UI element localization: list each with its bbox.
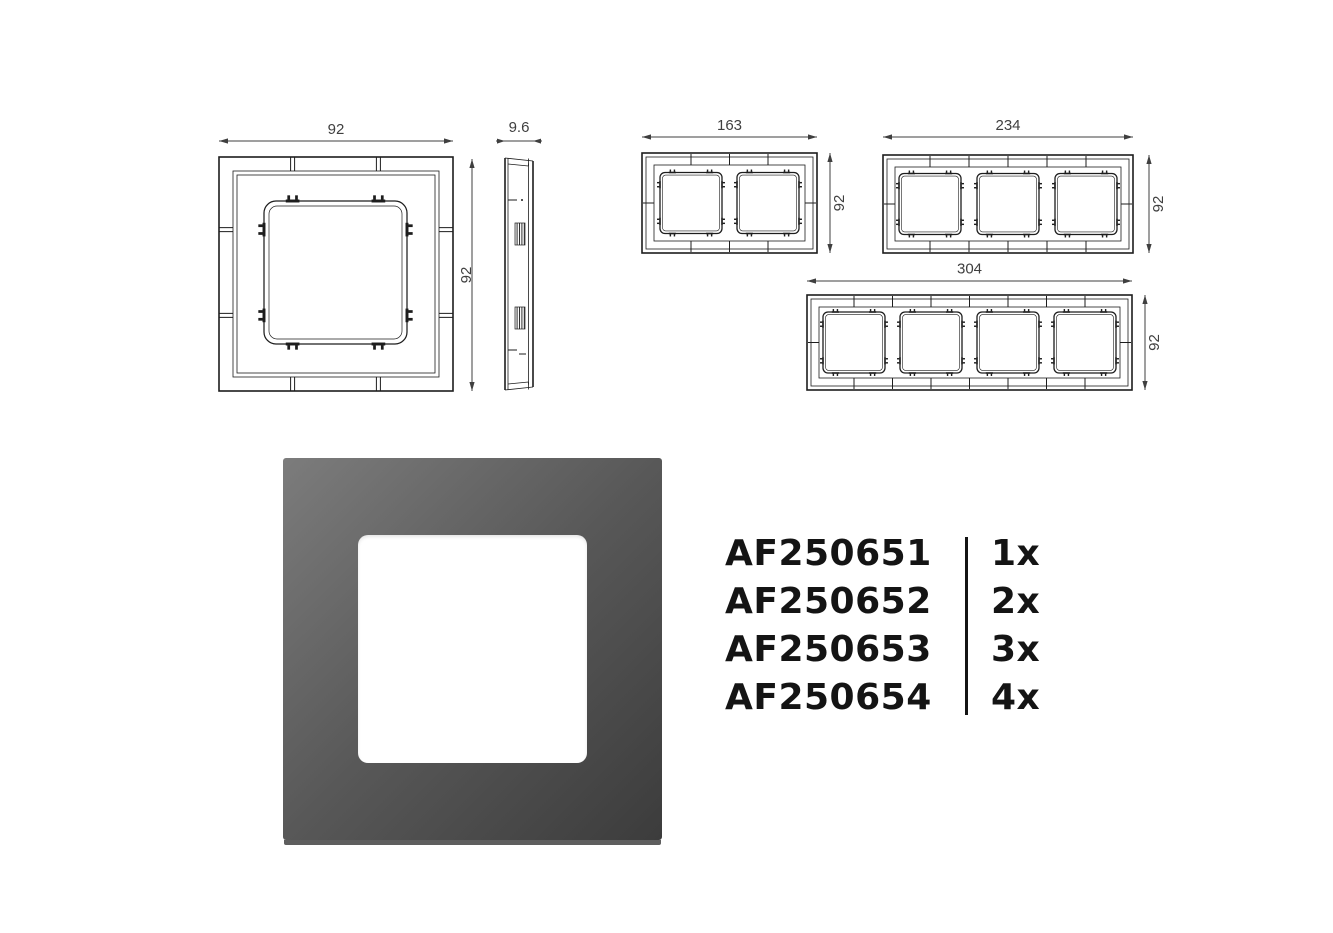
product-code: AF250651 bbox=[725, 533, 965, 574]
frame-photo-bottom-edge bbox=[284, 840, 661, 845]
datasheet-canvas: 92 92 9.6 bbox=[0, 0, 1333, 933]
side-profile-clips bbox=[508, 199, 526, 354]
gang4-height-dimension: 92 bbox=[1142, 295, 1163, 390]
dimension-label: 163 bbox=[717, 117, 742, 134]
gang3-height-dimension: 92 bbox=[1146, 155, 1167, 253]
frame-photo-opening bbox=[358, 535, 587, 763]
drawing-side-profile: 9.6 bbox=[495, 110, 555, 410]
product-row: AF250654 4x bbox=[725, 673, 1065, 721]
gang2-height-dimension: 92 bbox=[827, 153, 848, 253]
single-frame-opening bbox=[258, 195, 412, 349]
dimension-label: 9.6 bbox=[509, 119, 530, 136]
single-frame-outline bbox=[219, 157, 453, 391]
frame-photo bbox=[283, 458, 662, 840]
single-height-dimension: 92 bbox=[458, 159, 475, 391]
gang3-width-dimension: 234 bbox=[883, 117, 1133, 140]
product-quantity: 4x bbox=[965, 677, 1040, 718]
gang2-width-dimension: 163 bbox=[642, 117, 817, 140]
gang4-width-dimension: 304 bbox=[807, 261, 1132, 284]
product-code: AF250652 bbox=[725, 581, 965, 622]
single-frame-notches bbox=[219, 157, 453, 391]
dimension-label: 304 bbox=[957, 261, 982, 278]
product-row: AF250651 1x bbox=[725, 529, 1065, 577]
gang2-openings bbox=[657, 170, 802, 237]
product-code: AF250654 bbox=[725, 677, 965, 718]
side-profile-outline bbox=[505, 158, 533, 390]
dimension-label: 234 bbox=[995, 117, 1020, 134]
product-quantity: 3x bbox=[965, 629, 1040, 670]
dimension-label: 92 bbox=[831, 195, 848, 212]
dimension-label: 92 bbox=[1150, 196, 1167, 213]
product-list: AF250651 1x AF250652 2x AF250653 3x AF25… bbox=[725, 529, 1065, 721]
single-width-dimension: 92 bbox=[219, 121, 453, 144]
product-row: AF250652 2x bbox=[725, 577, 1065, 625]
product-quantity: 2x bbox=[965, 581, 1040, 622]
drawing-single-front: 92 92 bbox=[210, 110, 490, 410]
product-code: AF250653 bbox=[725, 629, 965, 670]
drawing-4gang-frame: 304 92 bbox=[795, 255, 1180, 410]
side-depth-dimension: 9.6 bbox=[496, 119, 542, 144]
dimension-label: 92 bbox=[1146, 334, 1163, 351]
product-row: AF250653 3x bbox=[725, 625, 1065, 673]
dimension-label: 92 bbox=[328, 121, 345, 138]
gang4-openings bbox=[820, 309, 1119, 376]
gang3-openings bbox=[896, 171, 1120, 238]
dimension-label: 92 bbox=[458, 267, 475, 284]
product-quantity: 1x bbox=[965, 533, 1040, 574]
product-list-divider bbox=[965, 537, 968, 715]
